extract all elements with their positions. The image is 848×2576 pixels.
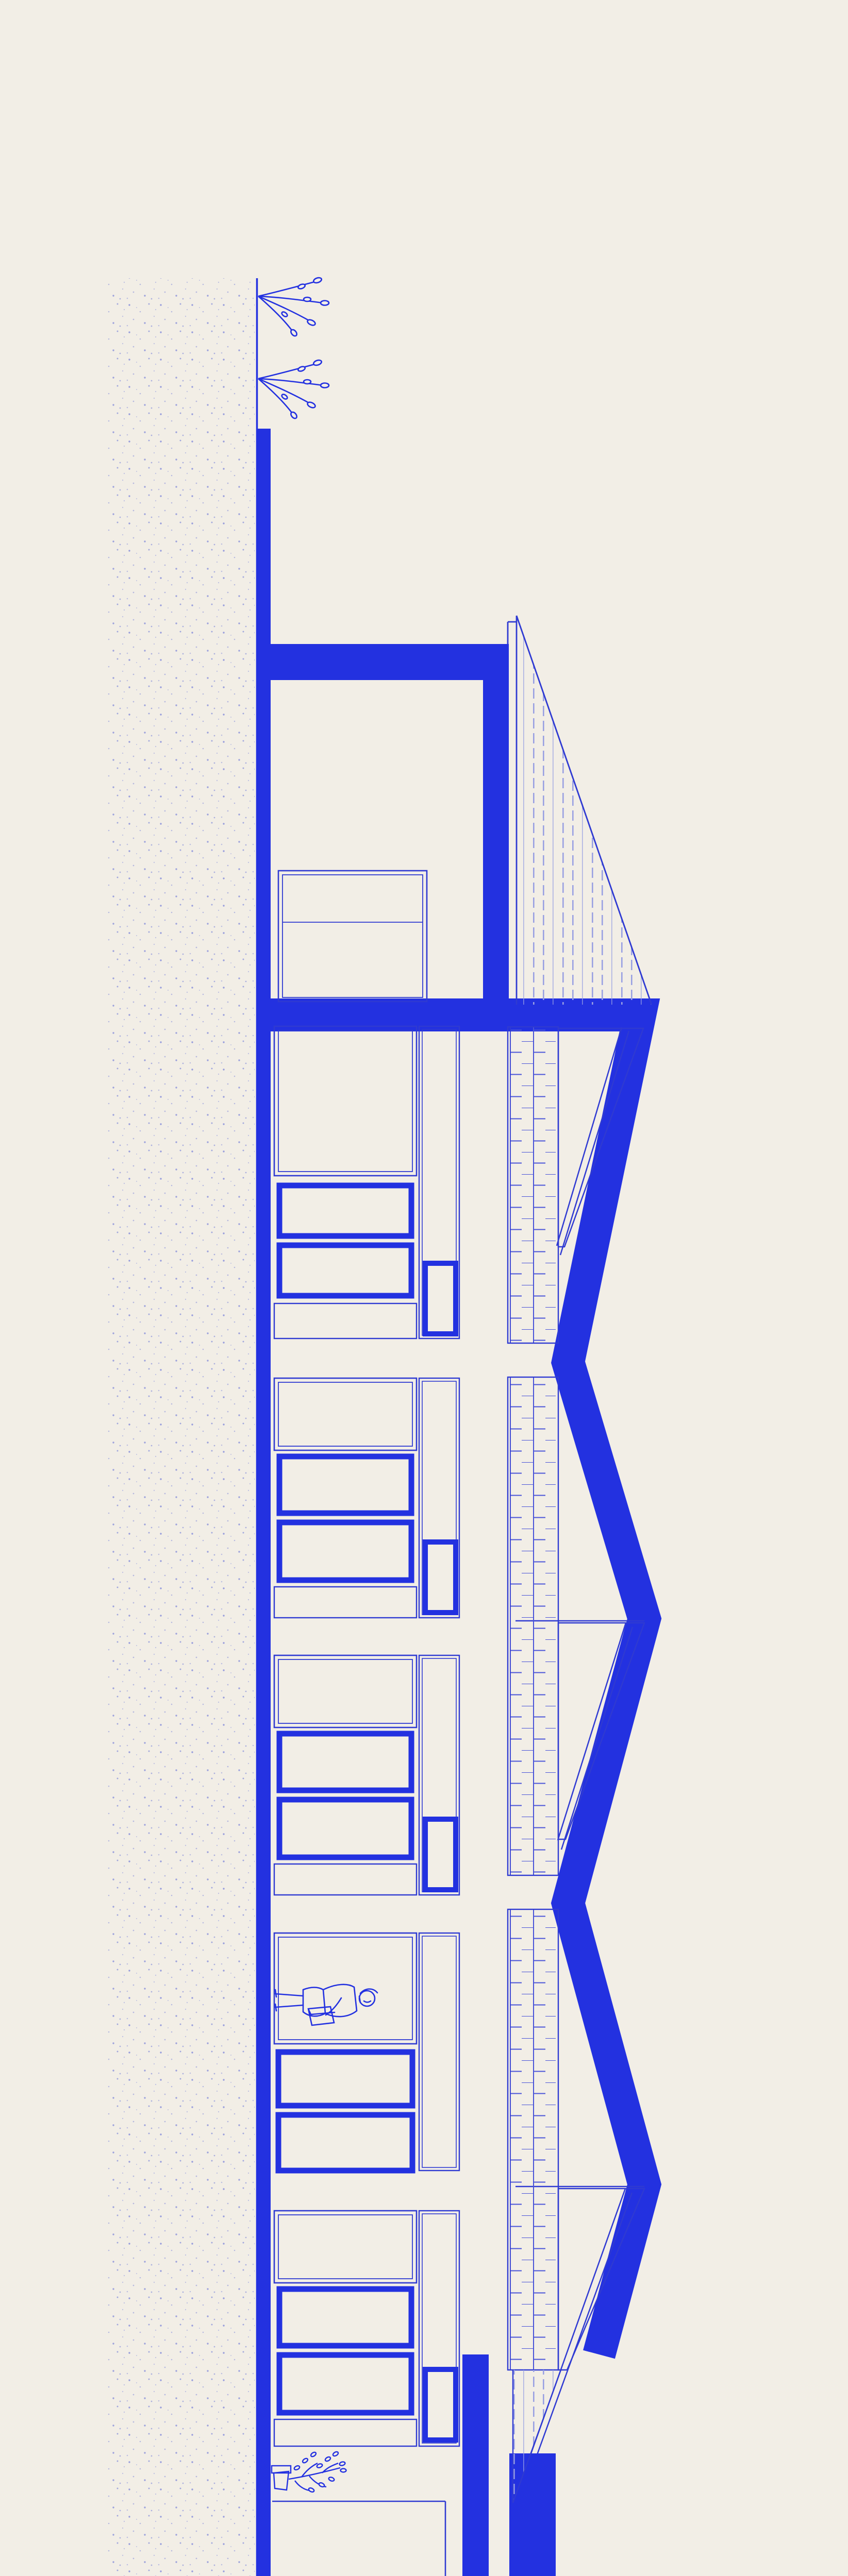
brick-pier — [508, 1377, 558, 1875]
floor-slab — [257, 429, 271, 2576]
brick-piers — [508, 1027, 558, 2370]
entry-cross-wall — [257, 644, 509, 680]
drawing-canvas: Cross-section of a single-storey sawtoot… — [0, 0, 848, 2576]
end-wall — [462, 2354, 489, 2576]
brick-pier — [508, 1027, 558, 1343]
earth-hatch — [106, 278, 255, 2576]
brick-pier — [508, 1909, 558, 2370]
section-drawing: Cross-section of a single-storey sawtoot… — [0, 0, 848, 2576]
entry-back-wall — [483, 644, 509, 1005]
